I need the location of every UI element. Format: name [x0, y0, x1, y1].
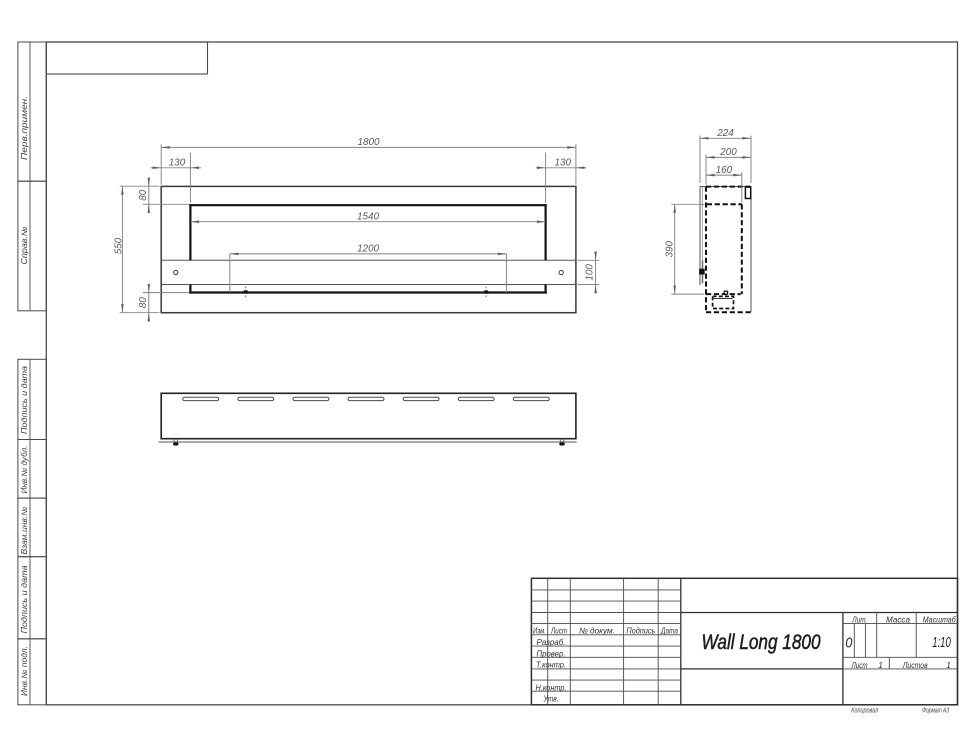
svg-text:Wall Long 1800: Wall Long 1800	[702, 630, 821, 654]
svg-text:224: 224	[716, 128, 734, 139]
svg-text:Формат А3: Формат А3	[922, 705, 949, 714]
svg-text:160: 160	[716, 165, 733, 176]
svg-text:Утв.: Утв.	[543, 694, 559, 704]
svg-text:80: 80	[138, 189, 149, 200]
svg-text:Разраб.: Разраб.	[537, 637, 566, 647]
svg-text:1:10: 1:10	[932, 635, 951, 651]
svg-text:200: 200	[719, 147, 737, 158]
svg-text:1800: 1800	[358, 137, 380, 148]
svg-text:Подпись и дата: Подпись и дата	[20, 565, 29, 634]
svg-text:130: 130	[169, 157, 186, 168]
svg-text:Перв.примен.: Перв.примен.	[20, 96, 29, 160]
svg-text:Дата: Дата	[660, 625, 678, 635]
svg-text:1540: 1540	[357, 211, 379, 222]
svg-text:Подпись: Подпись	[626, 625, 655, 635]
svg-text:1: 1	[878, 660, 883, 670]
svg-text:80: 80	[138, 297, 149, 308]
svg-text:Подпись и дата: Подпись и дата	[20, 365, 29, 434]
svg-text:Лист: Лист	[851, 660, 868, 670]
svg-text:Взам.инв.№: Взам.инв.№	[20, 507, 29, 555]
svg-text:Лист: Лист	[550, 625, 567, 635]
svg-text:100: 100	[585, 264, 596, 281]
svg-text:№ докум.: № докум.	[579, 625, 615, 635]
svg-text:1200: 1200	[357, 244, 379, 255]
svg-text:Масштаб: Масштаб	[923, 615, 956, 625]
svg-text:Изм.: Изм.	[533, 625, 546, 635]
svg-text:Копировал: Копировал	[851, 705, 878, 714]
svg-text:Н.контр.: Н.контр.	[536, 682, 567, 692]
svg-text:1: 1	[946, 660, 951, 670]
svg-text:Инв.№ подл.: Инв.№ подл.	[20, 646, 29, 696]
svg-text:Листов: Листов	[902, 660, 928, 670]
svg-text:Провер.: Провер.	[537, 648, 566, 658]
svg-text:390: 390	[664, 241, 675, 258]
svg-text:550: 550	[114, 237, 125, 254]
svg-text:Инв.№ дубл.: Инв.№ дубл.	[20, 446, 29, 494]
svg-text:Масса: Масса	[886, 615, 910, 625]
svg-text:Т.контр.: Т.контр.	[536, 660, 566, 670]
svg-text:Лит.: Лит.	[852, 615, 868, 625]
svg-text:130: 130	[555, 157, 572, 168]
svg-text:Справ.№: Справ.№	[20, 227, 29, 265]
svg-text:0: 0	[845, 635, 853, 652]
